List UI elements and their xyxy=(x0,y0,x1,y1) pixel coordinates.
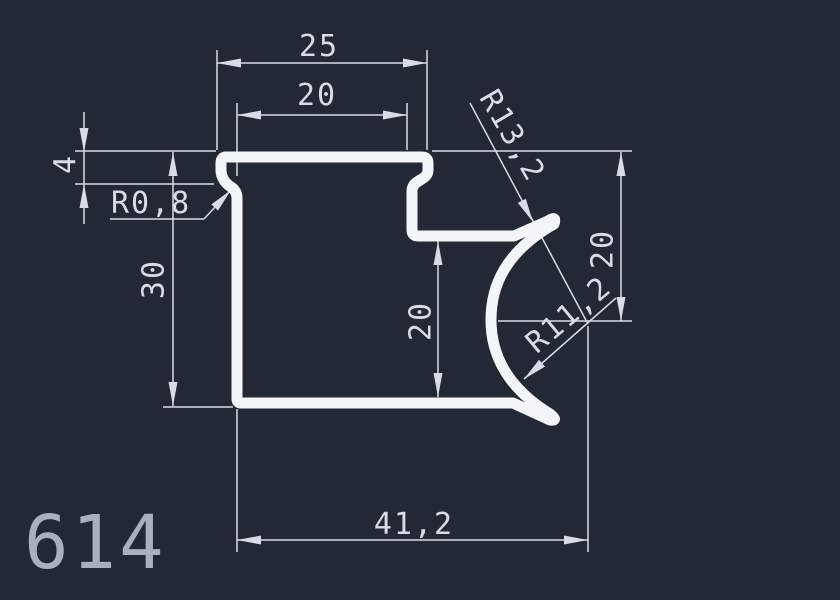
arrowhead-down xyxy=(434,373,443,397)
dim-label-30: 30 xyxy=(137,259,172,299)
dim-label-4: 4 xyxy=(49,154,84,174)
arrowhead-down xyxy=(617,297,626,321)
arrowhead-down xyxy=(80,128,89,152)
dim-label-r08: R0,8 xyxy=(111,186,191,221)
arrowhead-up xyxy=(617,152,626,176)
dim-label-r112: R11,2 xyxy=(519,269,618,360)
arrowhead-right xyxy=(403,59,427,68)
arrowhead-down xyxy=(169,382,178,406)
arrowhead-left xyxy=(217,59,241,68)
dim-label-41-2: 41,2 xyxy=(374,507,454,542)
arrowhead-left xyxy=(237,111,261,120)
dim-label-25: 25 xyxy=(299,29,339,64)
arrowhead-right xyxy=(383,111,407,120)
profile-outline xyxy=(221,157,555,420)
dim-label-20-right: 20 xyxy=(586,229,621,269)
part-number-label: 614 xyxy=(24,500,167,586)
dim-label-20-mid: 20 xyxy=(404,301,439,341)
arrowhead-right xyxy=(564,536,588,545)
dim-width-20-top xyxy=(237,103,407,176)
arrowhead-up xyxy=(80,184,89,208)
cad-canvas: 25 20 4 R0,8 30 20 20 R13,2 R11,2 41,2 6… xyxy=(0,0,840,600)
cad-drawing-svg: 25 20 4 R0,8 30 20 20 R13,2 R11,2 41,2 6… xyxy=(0,0,840,600)
dim-label-r132: R13,2 xyxy=(472,84,552,188)
arrowhead-down-right xyxy=(518,199,533,222)
label-layer: 25 20 4 R0,8 30 20 20 R13,2 R11,2 41,2 6… xyxy=(24,29,621,586)
arrowhead-up xyxy=(434,241,443,265)
arrowhead-left xyxy=(237,536,261,545)
dimension-layer xyxy=(75,50,632,552)
arrowhead-up xyxy=(169,152,178,176)
dim-label-20-top: 20 xyxy=(297,78,337,113)
